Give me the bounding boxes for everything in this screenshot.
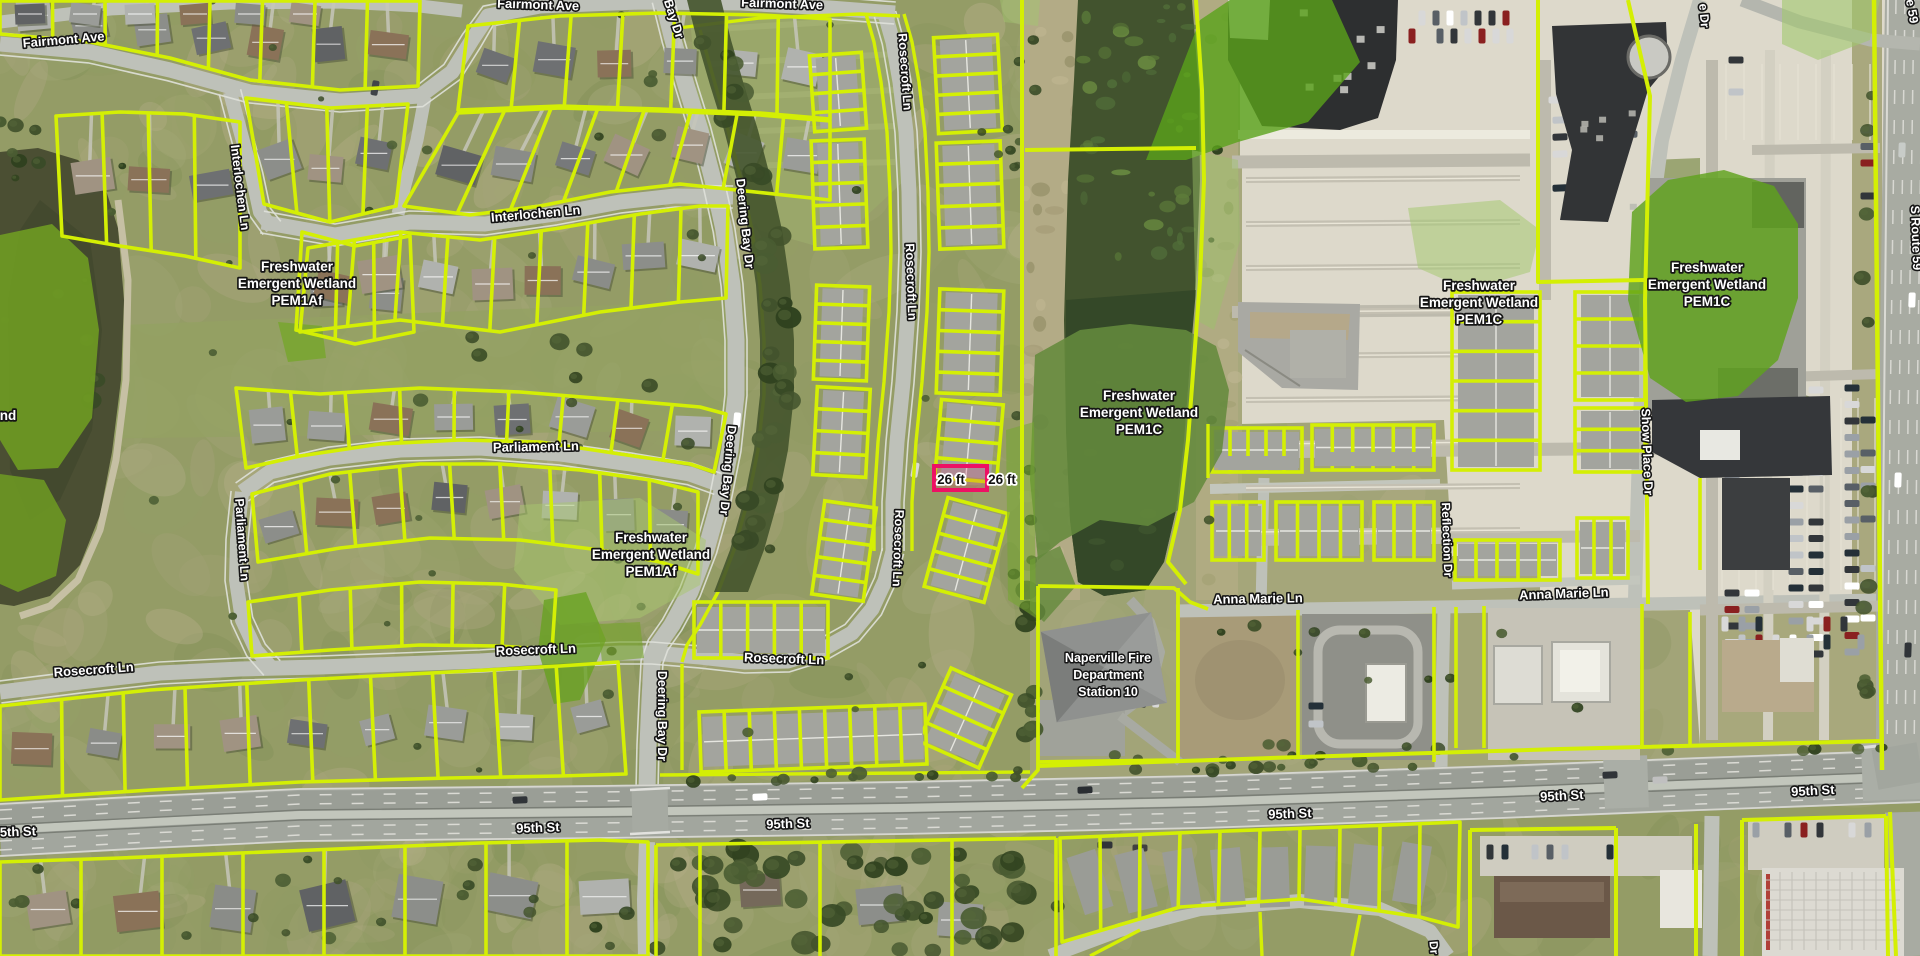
svg-text:PEM1Af: PEM1Af — [271, 293, 323, 308]
svg-text:95th St: 95th St — [516, 819, 561, 836]
svg-text:Rosecroft Ln: Rosecroft Ln — [890, 509, 907, 587]
svg-text:PEM1C: PEM1C — [1684, 294, 1731, 309]
svg-text:Rosecroft Ln: Rosecroft Ln — [744, 650, 825, 668]
svg-text:Emergent Wetland: Emergent Wetland — [1080, 405, 1198, 420]
svg-text:Freshwater: Freshwater — [1671, 260, 1744, 275]
svg-text:5th St: 5th St — [0, 823, 37, 839]
svg-text:PEM1C: PEM1C — [1116, 422, 1163, 437]
svg-text:95th St: 95th St — [766, 815, 811, 832]
svg-text:Emergent Wetland: Emergent Wetland — [238, 276, 356, 291]
svg-text:Rosecroft Ln: Rosecroft Ln — [496, 641, 577, 659]
svg-text:Emergent Wetland: Emergent Wetland — [1420, 295, 1538, 310]
svg-text:95th St: 95th St — [1791, 782, 1836, 799]
svg-text:Station 10: Station 10 — [1078, 685, 1138, 699]
svg-text:26 ft: 26 ft — [937, 472, 965, 487]
svg-text:Emergent Wetland: Emergent Wetland — [1648, 277, 1766, 292]
svg-text:95th St: 95th St — [1268, 805, 1313, 822]
svg-text:Emergent Wetland: Emergent Wetland — [592, 547, 710, 562]
svg-text:Freshwater: Freshwater — [1103, 388, 1176, 403]
svg-text:Parliament Ln: Parliament Ln — [493, 438, 579, 454]
svg-text:Freshwater: Freshwater — [1443, 278, 1516, 293]
svg-text:Freshwater: Freshwater — [261, 259, 334, 274]
svg-text:PEM1Af: PEM1Af — [625, 564, 677, 579]
svg-text:Reflection Dr: Reflection Dr — [1439, 502, 1456, 577]
svg-text:Deering Bay Dr: Deering Bay Dr — [655, 671, 669, 761]
svg-text:nd: nd — [0, 408, 16, 423]
svg-text:e Dr: e Dr — [1696, 3, 1712, 29]
svg-text:Rosecroft Ln: Rosecroft Ln — [903, 243, 920, 321]
svg-text:26 ft: 26 ft — [988, 472, 1016, 487]
svg-text:Anna Marie Ln: Anna Marie Ln — [1213, 590, 1303, 607]
svg-text:PEM1C: PEM1C — [1456, 312, 1503, 327]
svg-text:Dr: Dr — [1426, 940, 1441, 955]
svg-text:Department: Department — [1073, 668, 1143, 682]
svg-text:95th St: 95th St — [1540, 787, 1585, 804]
svg-text:Anna Marie Ln: Anna Marie Ln — [1519, 584, 1609, 602]
svg-text:Freshwater: Freshwater — [615, 530, 688, 545]
svg-text:Naperville Fire: Naperville Fire — [1065, 651, 1151, 665]
